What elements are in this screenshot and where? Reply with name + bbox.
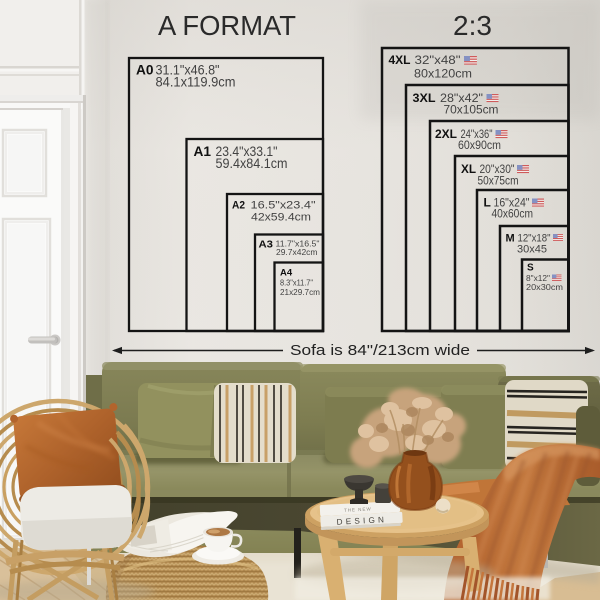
svg-text:4XL: 4XL bbox=[389, 53, 411, 67]
svg-text:59.4x84.1cm: 59.4x84.1cm bbox=[216, 156, 288, 171]
svg-text:A1: A1 bbox=[194, 144, 212, 159]
svg-text:3XL: 3XL bbox=[413, 91, 436, 105]
svg-text:16.5"x23.4": 16.5"x23.4" bbox=[251, 199, 316, 211]
svg-text:32"x48": 32"x48" bbox=[415, 53, 461, 67]
svg-text:21x29.7cm: 21x29.7cm bbox=[280, 288, 320, 297]
svg-text:S: S bbox=[527, 263, 534, 274]
svg-text:80x120cm: 80x120cm bbox=[414, 67, 472, 81]
svg-text:A4: A4 bbox=[280, 268, 293, 279]
svg-text:A2: A2 bbox=[232, 199, 245, 211]
svg-text:42x59.4cm: 42x59.4cm bbox=[251, 211, 311, 223]
svg-text:A FORMAT: A FORMAT bbox=[158, 10, 296, 41]
svg-text:Sofa is 84"/213cm wide: Sofa is 84"/213cm wide bbox=[290, 343, 470, 359]
svg-text:60x90cm: 60x90cm bbox=[458, 138, 501, 152]
svg-text:8"x12": 8"x12" bbox=[526, 274, 550, 283]
svg-text:8.3"x11.7": 8.3"x11.7" bbox=[280, 279, 313, 288]
svg-text:XL: XL bbox=[461, 162, 476, 176]
svg-text:84.1x119.9cm: 84.1x119.9cm bbox=[156, 75, 236, 90]
svg-text:30x45: 30x45 bbox=[517, 244, 547, 256]
svg-text:29.7x42cm: 29.7x42cm bbox=[276, 247, 318, 257]
svg-text:2:3: 2:3 bbox=[453, 10, 492, 41]
svg-text:50x75cm: 50x75cm bbox=[478, 174, 519, 188]
svg-text:40x60cm: 40x60cm bbox=[492, 207, 534, 221]
svg-text:70x105cm: 70x105cm bbox=[444, 103, 499, 117]
svg-text:20x30cm: 20x30cm bbox=[526, 283, 563, 292]
svg-text:2XL: 2XL bbox=[435, 127, 457, 141]
svg-text:A3: A3 bbox=[259, 238, 274, 250]
svg-text:M: M bbox=[506, 233, 515, 245]
svg-text:A0: A0 bbox=[136, 63, 154, 78]
svg-text:L: L bbox=[484, 196, 491, 210]
